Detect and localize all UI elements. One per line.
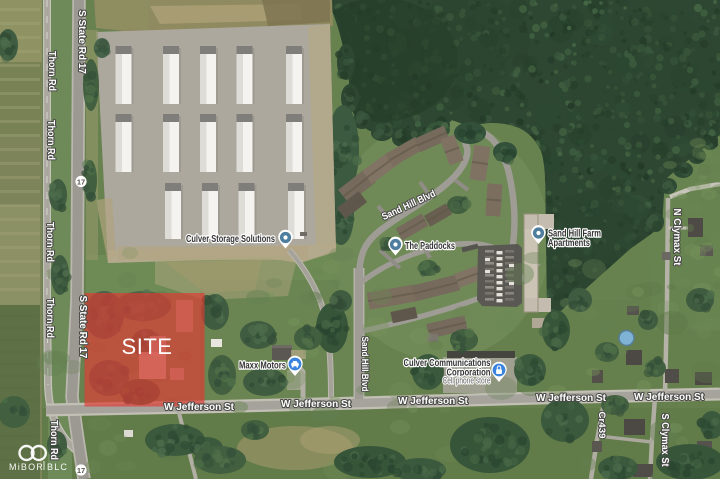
svg-text:SITE: SITE: [122, 334, 173, 359]
svg-text:Thorn Rd: Thorn Rd: [46, 51, 57, 91]
svg-text:W Jefferson St: W Jefferson St: [634, 392, 705, 403]
svg-text:Culver Storage Solutions: Culver Storage Solutions: [186, 234, 275, 245]
svg-text:Thorn Rd: Thorn Rd: [45, 120, 56, 160]
svg-text:W Jefferson St: W Jefferson St: [536, 393, 607, 404]
svg-text:Sand Hill Blvd: Sand Hill Blvd: [359, 337, 370, 392]
svg-text:Maxx Motors: Maxx Motors: [239, 361, 286, 372]
svg-text:17: 17: [77, 466, 85, 475]
svg-text:The Paddocks: The Paddocks: [405, 241, 455, 252]
svg-text:Thorn Rd: Thorn Rd: [44, 298, 55, 338]
svg-text:S State Rd 17: S State Rd 17: [76, 10, 87, 74]
svg-text:S State Rd 17: S State Rd 17: [77, 296, 88, 359]
svg-text:W Jefferson St: W Jefferson St: [164, 402, 235, 413]
svg-text:W Jefferson St: W Jefferson St: [281, 399, 352, 410]
svg-text:MiBOR: MiBOR: [9, 462, 44, 472]
svg-text:Thorn Rd: Thorn Rd: [48, 420, 59, 460]
svg-text:Thorn Rd: Thorn Rd: [44, 222, 55, 262]
svg-text:N Clymax St: N Clymax St: [671, 209, 682, 267]
svg-text:W Jefferson St: W Jefferson St: [398, 396, 469, 407]
svg-text:S Clymax St: S Clymax St: [659, 414, 670, 468]
svg-text:Cr439: Cr439: [596, 412, 607, 439]
svg-text:17: 17: [77, 177, 85, 186]
svg-text:BLC: BLC: [47, 462, 68, 472]
svg-text:Apartments: Apartments: [548, 238, 590, 249]
svg-text:Cell phone store: Cell phone store: [443, 376, 491, 387]
